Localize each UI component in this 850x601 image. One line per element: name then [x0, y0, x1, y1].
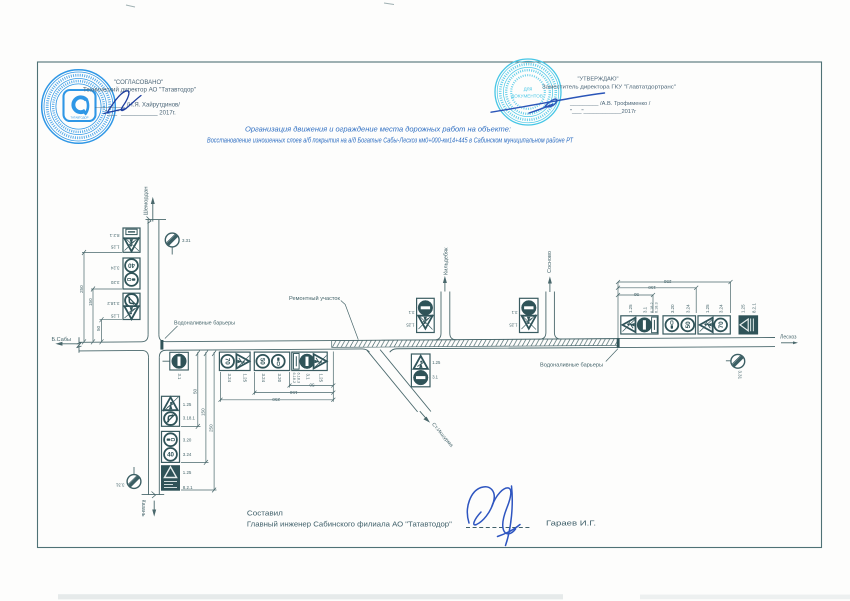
svg-text:1.25: 1.25	[628, 304, 633, 313]
svg-text:Технический директор АО "Татав: Технический директор АО "Татавтодор"	[83, 87, 196, 94]
svg-text:ТАТАВТОДОР: ТАТАВТОДОР	[70, 116, 88, 120]
svg-text:Водоналивные барьеры: Водоналивные барьеры	[540, 363, 603, 369]
svg-text:250: 250	[663, 279, 671, 284]
svg-text:"СОГЛАСОВАНО": "СОГЛАСОВАНО"	[114, 80, 164, 86]
svg-text:6.18.2: 6.18.2	[292, 373, 296, 384]
svg-text:8.2.1: 8.2.1	[752, 303, 757, 313]
svg-text:_________ /Н.Я. Хайрутдинов/: _________ /Н.Я. Хайрутдинов/	[94, 102, 180, 109]
svg-text:50: 50	[633, 292, 639, 297]
svg-text:8.2.1: 8.2.1	[183, 485, 193, 490]
svg-text:1.25: 1.25	[432, 360, 441, 365]
svg-text:250: 250	[209, 424, 214, 432]
svg-text:50: 50	[192, 388, 197, 394]
svg-text:3.31: 3.31	[115, 483, 124, 488]
svg-text:250: 250	[79, 285, 84, 293]
svg-text:3.24: 3.24	[227, 374, 232, 383]
svg-text:Кильдебяк: Кильдебяк	[443, 247, 449, 275]
svg-text:1.25: 1.25	[509, 323, 518, 328]
svg-text:50: 50	[96, 325, 101, 331]
svg-text:3.24: 3.24	[686, 304, 691, 313]
svg-text:Сосново: Сосново	[547, 251, 553, 273]
svg-text:70: 70	[718, 321, 725, 328]
svg-text:3.20: 3.20	[670, 304, 675, 313]
svg-text:Водоналивные барьеры: Водоналивные барьеры	[174, 321, 235, 327]
svg-text:40: 40	[128, 261, 135, 268]
svg-text:Шемордан: Шемордан	[143, 186, 149, 215]
svg-text:Ремонтный участок: Ремонтный участок	[289, 295, 341, 302]
svg-text:"___"____________2017г: "___"____________2017г	[570, 109, 636, 115]
svg-text:1.25: 1.25	[243, 374, 248, 383]
svg-text:1.25: 1.25	[183, 402, 192, 407]
svg-text:Ст.Икшурма: Ст.Икшурма	[430, 422, 454, 449]
svg-text:50: 50	[309, 383, 315, 388]
svg-text:50: 50	[259, 358, 266, 365]
svg-text:Казань: Казань	[140, 500, 146, 517]
svg-text:Лесхоз: Лесхоз	[780, 335, 797, 341]
svg-text:3.1: 3.1	[432, 374, 438, 379]
svg-text:6.18.3: 6.18.3	[297, 373, 301, 384]
svg-text:для: для	[524, 87, 533, 93]
svg-text:3.1: 3.1	[408, 310, 414, 315]
svg-text:Организация движения и огражде: Организация движения и ограждение места …	[245, 125, 511, 134]
svg-text:ДОКУМЕНТОВ: ДОКУМЕНТОВ	[511, 94, 543, 99]
svg-text:50: 50	[685, 321, 692, 328]
svg-text:1.25: 1.25	[406, 323, 415, 328]
svg-text:1.25: 1.25	[110, 245, 119, 250]
svg-text:3.1: 3.1	[642, 306, 647, 313]
svg-text:150: 150	[289, 390, 297, 395]
svg-text:1.25: 1.25	[183, 470, 192, 475]
svg-text:"УТВЕРЖДАЮ": "УТВЕРЖДАЮ"	[577, 77, 618, 83]
svg-text:3.24: 3.24	[183, 452, 192, 457]
svg-text:Составил: Составил	[247, 511, 283, 518]
svg-text:3.1: 3.1	[511, 310, 517, 315]
svg-text:Гараев И.Г.: Гараев И.Г.	[546, 521, 596, 528]
svg-text:3.24: 3.24	[110, 266, 119, 271]
svg-text:Б.Сабы: Б.Сабы	[52, 337, 72, 343]
svg-text:1.25: 1.25	[319, 374, 324, 383]
svg-text:3.18.1: 3.18.1	[183, 416, 196, 421]
svg-text:Заместитель директора ГКУ "Гла: Заместитель директора ГКУ "Главтатдортра…	[542, 84, 676, 90]
svg-text:3.1: 3.1	[177, 374, 182, 380]
svg-text:3.1: 3.1	[305, 374, 310, 381]
svg-text:6.18.2: 6.18.2	[650, 302, 654, 313]
svg-text:40: 40	[167, 452, 174, 459]
svg-text:3.20: 3.20	[110, 280, 119, 285]
svg-text:70: 70	[223, 358, 230, 365]
svg-text:1.25: 1.25	[110, 314, 119, 319]
svg-text:3.31: 3.31	[738, 371, 743, 380]
svg-text:3.24: 3.24	[719, 304, 724, 313]
svg-text:3.20: 3.20	[277, 374, 282, 383]
svg-text:1.25: 1.25	[741, 304, 746, 313]
svg-text:150: 150	[648, 285, 656, 290]
svg-text:_________ /А.В. Трофименко /: _________ /А.В. Трофименко /	[569, 101, 651, 107]
svg-text:3.31: 3.31	[182, 238, 191, 243]
svg-text:1.25: 1.25	[705, 304, 710, 313]
svg-text:150: 150	[201, 408, 206, 416]
svg-text:250: 250	[272, 397, 280, 402]
svg-text:Восстановление изношенных слое: Восстановление изношенных слоев а/б покр…	[207, 137, 574, 145]
svg-text:3.18.2: 3.18.2	[107, 301, 120, 306]
svg-text:Главный инженер Сабинского фил: Главный инженер Сабинского филиала АО "Т…	[247, 521, 453, 529]
svg-text:3.20: 3.20	[183, 438, 192, 443]
svg-text:8.2.1: 8.2.1	[109, 233, 119, 238]
svg-text:3.24: 3.24	[261, 374, 266, 383]
svg-text:150: 150	[88, 298, 93, 306]
svg-text:6.18.3: 6.18.3	[655, 302, 659, 313]
